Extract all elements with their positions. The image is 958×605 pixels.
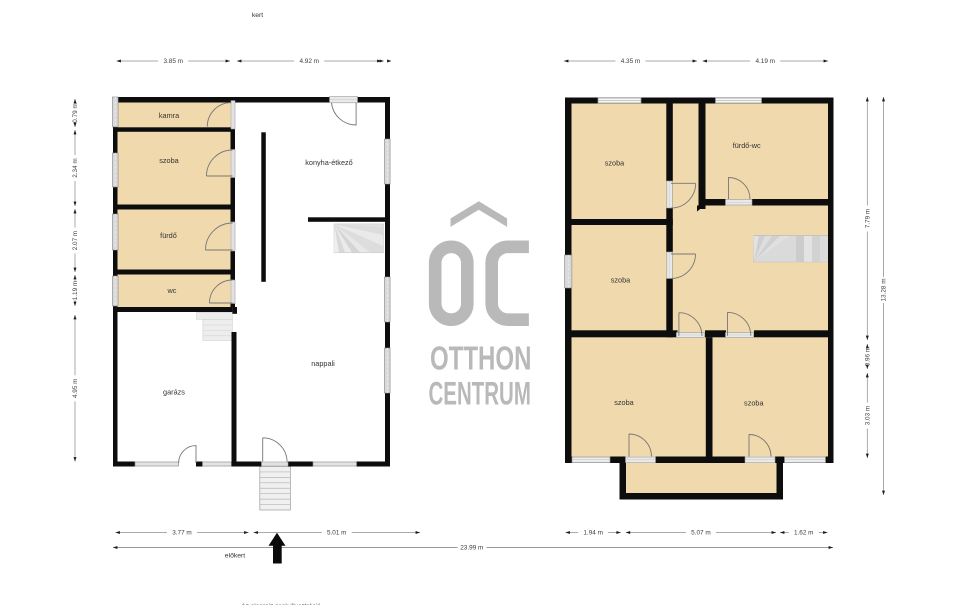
- svg-text:konyha-étkező: konyha-étkező: [305, 158, 352, 167]
- svg-text:wc: wc: [167, 286, 177, 295]
- svg-text:0.96 m: 0.96 m: [865, 347, 872, 367]
- svg-text:1.94 m: 1.94 m: [583, 530, 603, 537]
- svg-text:nappali: nappali: [311, 359, 335, 368]
- svg-text:7.79 m: 7.79 m: [865, 209, 872, 229]
- svg-text:garázs: garázs: [163, 388, 185, 397]
- svg-text:OTTHON: OTTHON: [430, 340, 532, 377]
- svg-text:kert: kert: [252, 12, 263, 19]
- svg-text:kamra: kamra: [159, 111, 180, 120]
- svg-text:fürdő: fürdő: [160, 231, 177, 240]
- svg-text:5.01 m: 5.01 m: [327, 530, 347, 537]
- svg-text:1.19 m: 1.19 m: [72, 281, 79, 301]
- svg-text:13.28 m: 13.28 m: [881, 278, 888, 301]
- svg-text:2.07 m: 2.07 m: [72, 231, 79, 251]
- svg-text:szoba: szoba: [614, 398, 634, 407]
- svg-text:5.07 m: 5.07 m: [691, 530, 711, 537]
- svg-text:0.79 m: 0.79 m: [72, 103, 79, 123]
- svg-text:4.95 m: 4.95 m: [72, 378, 79, 398]
- svg-text:előkert: előkert: [225, 553, 246, 560]
- svg-text:4.35 m: 4.35 m: [621, 58, 641, 65]
- svg-text:4.19 m: 4.19 m: [755, 58, 775, 65]
- svg-text:szoba: szoba: [159, 156, 179, 165]
- svg-text:szoba: szoba: [605, 159, 625, 168]
- svg-text:fürdő-wc: fürdő-wc: [733, 141, 761, 150]
- svg-text:3.03 m: 3.03 m: [865, 406, 872, 426]
- svg-text:1.62 m: 1.62 m: [794, 530, 814, 537]
- svg-text:4.92 m: 4.92 m: [299, 58, 319, 65]
- svg-text:szoba: szoba: [744, 399, 764, 408]
- svg-text:3.77 m: 3.77 m: [172, 530, 192, 537]
- svg-text:CENTRUM: CENTRUM: [429, 376, 531, 412]
- svg-text:23.99 m: 23.99 m: [460, 545, 483, 552]
- svg-text:2.34 m: 2.34 m: [72, 158, 79, 178]
- svg-text:3.85 m: 3.85 m: [163, 58, 183, 65]
- svg-text:szoba: szoba: [611, 276, 631, 285]
